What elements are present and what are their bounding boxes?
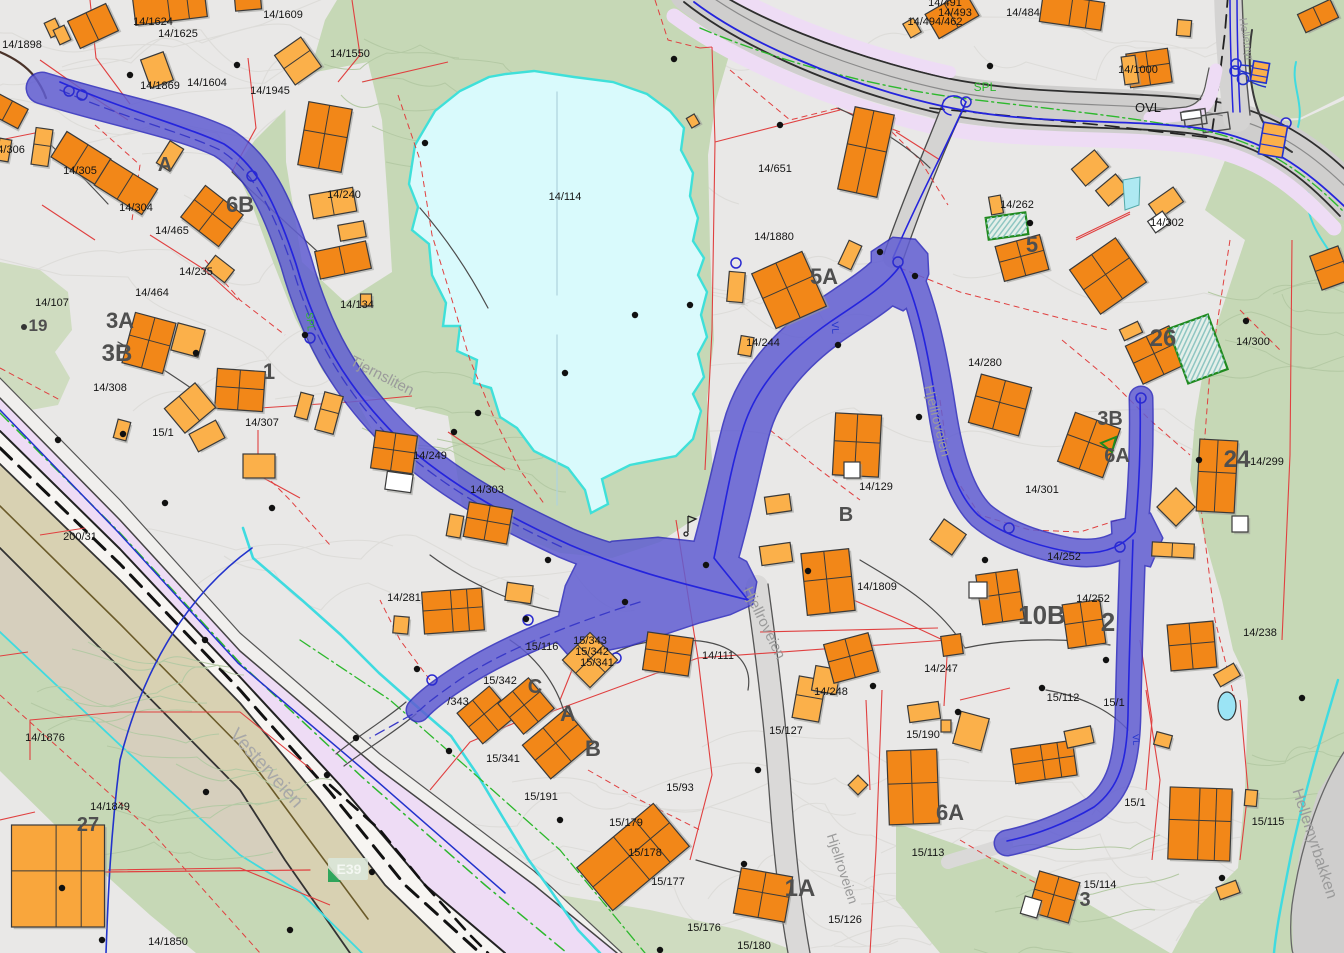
- svg-text:14/300: 14/300: [1236, 336, 1270, 348]
- svg-text:15/115: 15/115: [1252, 816, 1285, 828]
- svg-text:15/113: 15/113: [912, 847, 945, 859]
- svg-text:A: A: [560, 701, 576, 726]
- svg-text:14/307: 14/307: [245, 417, 279, 429]
- svg-text:15/342: 15/342: [483, 675, 517, 687]
- svg-text:15/177: 15/177: [651, 876, 685, 888]
- svg-text:27: 27: [77, 814, 99, 836]
- svg-text:14/247: 14/247: [924, 663, 958, 675]
- svg-text:14/1880: 14/1880: [754, 231, 794, 243]
- svg-text:15/191: 15/191: [524, 791, 558, 803]
- svg-text:5: 5: [1026, 232, 1038, 257]
- svg-text:14/1625: 14/1625: [158, 28, 198, 40]
- svg-text:26: 26: [1150, 325, 1177, 352]
- svg-text:15/341: 15/341: [580, 657, 614, 669]
- svg-text:5A: 5A: [810, 264, 838, 289]
- svg-text:200/31: 200/31: [63, 531, 97, 543]
- svg-text:B: B: [585, 736, 601, 761]
- svg-text:14/1609: 14/1609: [263, 9, 303, 21]
- svg-text:14/651: 14/651: [758, 163, 792, 175]
- svg-text:14/235: 14/235: [179, 266, 213, 278]
- svg-text:14/299: 14/299: [1250, 456, 1284, 468]
- svg-text:15/127: 15/127: [769, 725, 803, 737]
- svg-text:15/179: 15/179: [609, 817, 643, 829]
- svg-text:14/114: 14/114: [549, 191, 582, 203]
- svg-text:15/126: 15/126: [828, 914, 862, 926]
- svg-text:A: A: [158, 154, 172, 176]
- svg-text:14/464: 14/464: [135, 287, 169, 299]
- svg-text:15/178: 15/178: [628, 847, 662, 859]
- svg-text:14/1945: 14/1945: [250, 85, 290, 97]
- svg-text:14/134: 14/134: [340, 299, 374, 311]
- svg-text:10B: 10B: [1018, 600, 1066, 630]
- svg-text:14/306: 14/306: [0, 144, 25, 156]
- svg-text:14/1550: 14/1550: [330, 48, 370, 60]
- svg-text:15/93: 15/93: [666, 782, 694, 794]
- svg-text:14/252: 14/252: [1047, 551, 1081, 563]
- svg-text:14/238: 14/238: [1243, 627, 1277, 639]
- svg-text:SPL: SPL: [974, 80, 997, 94]
- svg-text:14/280: 14/280: [968, 357, 1002, 369]
- svg-text:14/240: 14/240: [327, 189, 361, 201]
- svg-text:14/1624: 14/1624: [133, 16, 173, 28]
- svg-text:3B: 3B: [102, 340, 133, 367]
- svg-text:14/1000: 14/1000: [1118, 64, 1158, 76]
- svg-text:15/341: 15/341: [486, 753, 520, 765]
- svg-text:15/1: 15/1: [1124, 797, 1145, 809]
- svg-text:6A: 6A: [1104, 445, 1130, 467]
- svg-text:C: C: [528, 676, 542, 698]
- svg-text:14/465: 14/465: [155, 225, 189, 237]
- svg-text:15/1: 15/1: [1103, 697, 1124, 709]
- svg-text:14/252: 14/252: [1076, 593, 1110, 605]
- svg-text:3B: 3B: [1097, 408, 1123, 430]
- svg-text:14/308: 14/308: [93, 382, 127, 394]
- svg-text:OVL: OVL: [1135, 100, 1161, 115]
- svg-text:14/494/462: 14/494/462: [907, 16, 962, 28]
- svg-text:6A: 6A: [936, 800, 964, 825]
- svg-text:14/303: 14/303: [470, 484, 504, 496]
- svg-text:14/248: 14/248: [814, 686, 848, 698]
- svg-text:14/129: 14/129: [859, 481, 893, 493]
- svg-text:1A: 1A: [785, 875, 816, 902]
- svg-text:14/1849: 14/1849: [90, 801, 130, 813]
- svg-text:14/305: 14/305: [63, 165, 97, 177]
- svg-text:SPL: SPL: [303, 312, 316, 332]
- svg-text:14/304: 14/304: [119, 202, 153, 214]
- svg-text:14/1604: 14/1604: [187, 77, 227, 89]
- svg-text:24: 24: [1224, 446, 1251, 473]
- svg-text:/343: /343: [447, 696, 468, 708]
- svg-text:3: 3: [1079, 889, 1090, 911]
- svg-text:14/262: 14/262: [1000, 199, 1034, 211]
- svg-text:15/176: 15/176: [687, 922, 721, 934]
- svg-text:14/1809: 14/1809: [857, 581, 897, 593]
- svg-text:15/190: 15/190: [906, 729, 940, 741]
- svg-text:2: 2: [1101, 607, 1115, 637]
- svg-text:B: B: [839, 504, 853, 526]
- svg-text:19: 19: [29, 316, 48, 335]
- svg-text:14/249: 14/249: [413, 450, 447, 462]
- svg-text:1: 1: [263, 359, 275, 384]
- svg-text:15/180: 15/180: [737, 940, 771, 952]
- svg-text:14/1869: 14/1869: [140, 80, 180, 92]
- svg-text:15/116: 15/116: [526, 641, 559, 653]
- svg-text:3A: 3A: [106, 308, 134, 333]
- svg-text:VL: VL: [828, 321, 840, 335]
- svg-text:VL: VL: [1131, 734, 1142, 746]
- svg-text:14/281: 14/281: [387, 592, 421, 604]
- svg-text:14/107: 14/107: [35, 297, 69, 309]
- svg-text:14/111: 14/111: [702, 650, 734, 662]
- svg-text:15/112: 15/112: [1047, 692, 1080, 704]
- svg-text:14/484: 14/484: [1006, 7, 1040, 19]
- svg-text:15/1: 15/1: [152, 427, 173, 439]
- svg-text:14/244: 14/244: [746, 337, 780, 349]
- svg-text:14/1898: 14/1898: [2, 39, 42, 51]
- svg-text:E39: E39: [337, 861, 362, 877]
- svg-text:6B: 6B: [226, 192, 254, 217]
- svg-text:14/302: 14/302: [1150, 217, 1184, 229]
- svg-text:14/1876: 14/1876: [25, 732, 65, 744]
- svg-text:14/1850: 14/1850: [148, 936, 188, 948]
- svg-text:14/301: 14/301: [1025, 484, 1059, 496]
